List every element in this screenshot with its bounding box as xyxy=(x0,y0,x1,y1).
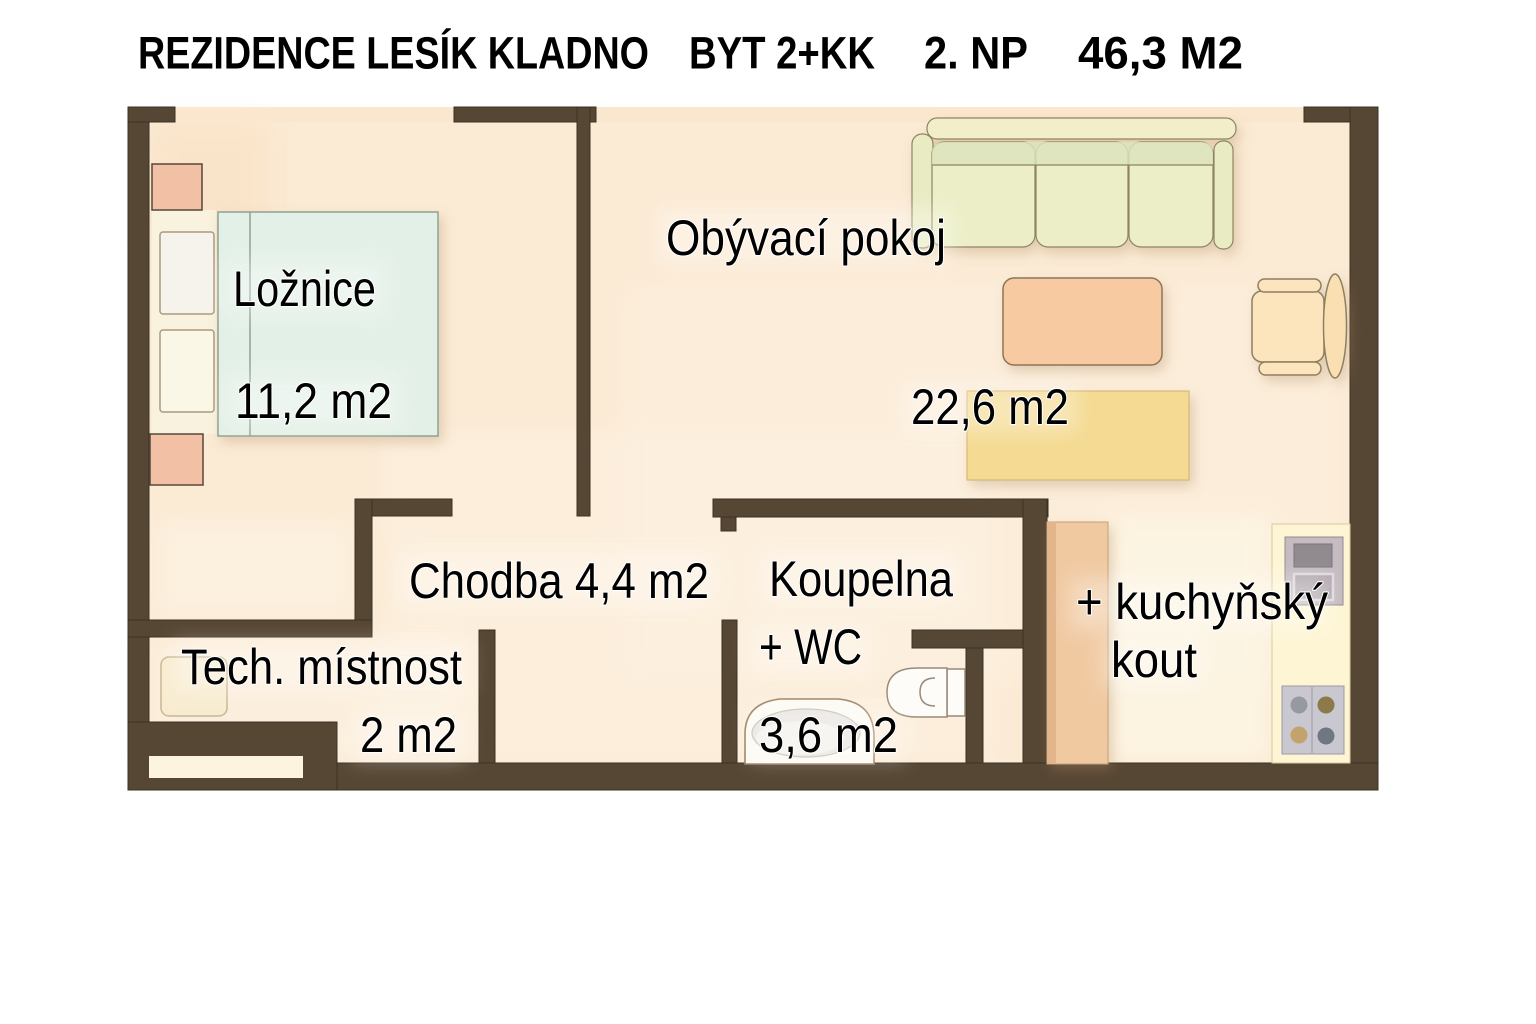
svg-text:kout: kout xyxy=(1111,632,1197,688)
svg-text:BYT 2+KK: BYT 2+KK xyxy=(689,28,875,79)
svg-text:+ WC: + WC xyxy=(759,619,862,675)
svg-text:+ kuchyňský: + kuchyňský xyxy=(1076,574,1328,630)
svg-text:Tech. místnost: Tech. místnost xyxy=(181,639,462,695)
svg-text:2 m2: 2 m2 xyxy=(360,707,457,763)
svg-text:46,3 M2: 46,3 M2 xyxy=(1078,28,1243,79)
svg-text:REZIDENCE LESÍK KLADNO: REZIDENCE LESÍK KLADNO xyxy=(138,28,649,79)
svg-text:11,2 m2: 11,2 m2 xyxy=(235,373,392,429)
svg-text:Chodba 4,4 m2: Chodba 4,4 m2 xyxy=(409,553,709,609)
svg-text:Ložnice: Ložnice xyxy=(233,261,376,317)
svg-text:Koupelna: Koupelna xyxy=(769,551,953,607)
svg-text:3,6 m2: 3,6 m2 xyxy=(759,707,898,763)
svg-text:Obývací pokoj: Obývací pokoj xyxy=(666,210,946,266)
svg-text:2. NP: 2. NP xyxy=(924,28,1028,79)
svg-text:22,6 m2: 22,6 m2 xyxy=(911,379,1069,435)
